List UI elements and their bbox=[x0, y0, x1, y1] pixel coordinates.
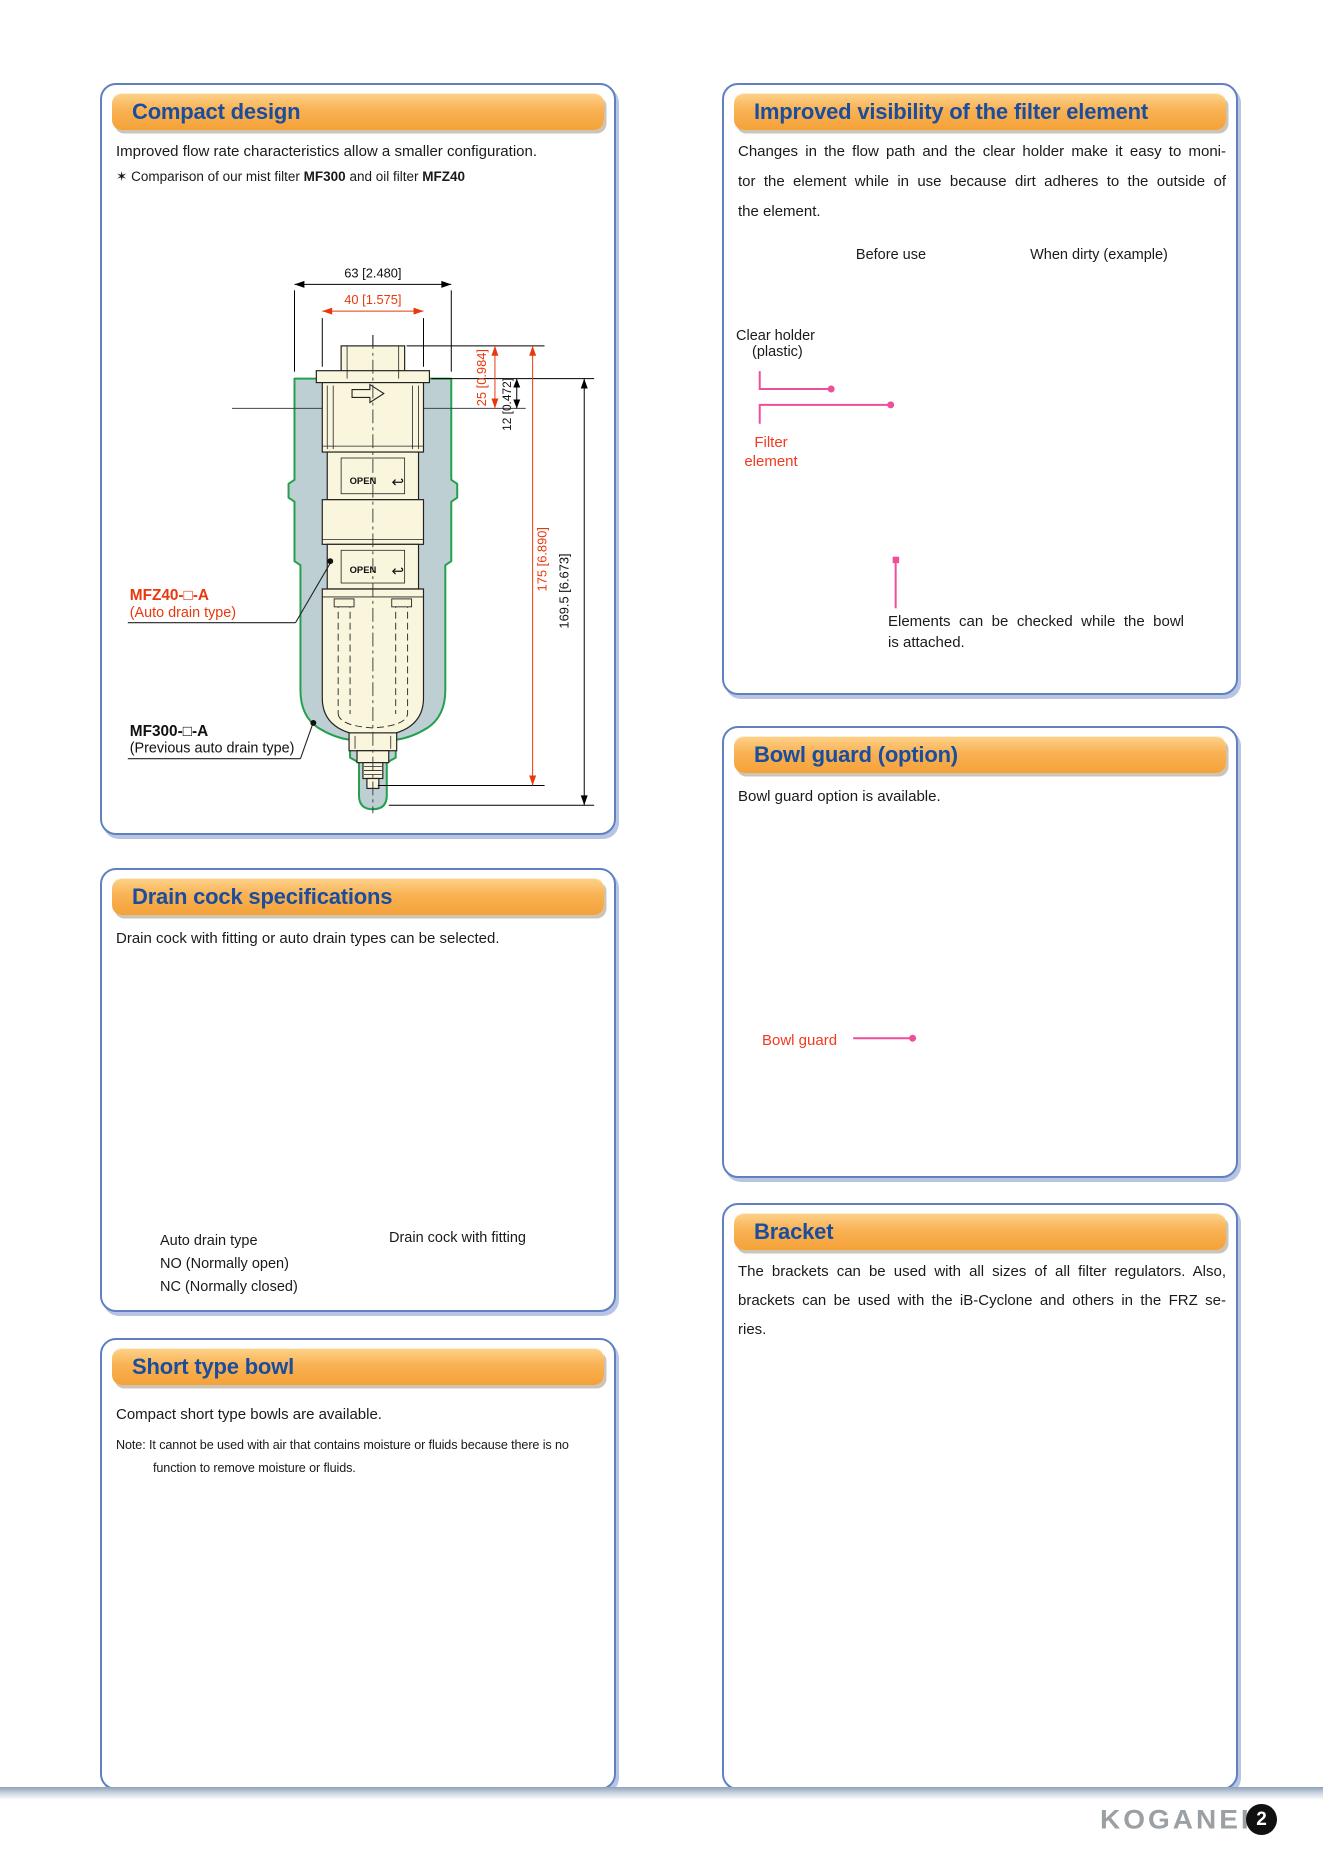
section-title: Drain cock specifications bbox=[132, 884, 392, 910]
label-old-model: MF300-□-A bbox=[130, 723, 208, 740]
panel-short-bowl: Short type bowl Compact short type bowls… bbox=[100, 1338, 616, 1790]
section-title: Bracket bbox=[754, 1219, 833, 1245]
section-title: Short type bowl bbox=[132, 1354, 294, 1380]
short-bowl-intro: Compact short type bowls are available. bbox=[116, 1404, 382, 1425]
dim-40-label: 40 [1.575] bbox=[344, 292, 401, 307]
filter-dimension-drawing: OPEN ↩ OPEN ↩ 63 [2.480] 40 [1.575] bbox=[102, 85, 614, 833]
panel-bracket: Bracket The brackets can be used with al… bbox=[722, 1203, 1238, 1790]
section-header-bracket: Bracket bbox=[734, 1213, 1226, 1250]
short-bowl-note-line1: Note: It cannot be used with air that co… bbox=[116, 1438, 569, 1452]
bracket-paragraph: The brackets can be used with all sizes … bbox=[738, 1257, 1226, 1344]
page-number: 2 bbox=[1256, 1809, 1267, 1831]
section-header-short-bowl: Short type bowl bbox=[112, 1348, 604, 1385]
catalog-page: { "page": {"width": 1323, "height": 1871… bbox=[0, 0, 1323, 1871]
paragraph-line: ries. bbox=[738, 1315, 1226, 1344]
dim-169-label: 169.5 [6.673] bbox=[556, 553, 571, 628]
dim-12 bbox=[513, 379, 520, 409]
paragraph-line: brackets can be used with the iB-Cyclone… bbox=[738, 1286, 1226, 1315]
page-number-badge: 2 bbox=[1246, 1804, 1277, 1835]
panel-bowl-guard: Bowl guard (option) Bowl guard option is… bbox=[722, 726, 1238, 1178]
visibility-leader-lines bbox=[724, 85, 1236, 693]
panel-compact-design: Compact design Improved flow rate charac… bbox=[100, 83, 616, 835]
open-hook-arrow-lower: ↩ bbox=[391, 564, 403, 580]
paragraph-line: The brackets can be used with all sizes … bbox=[738, 1257, 1226, 1286]
open-hook-arrow-upper: ↩ bbox=[391, 475, 403, 491]
panel-visibility: Improved visibility of the filter elemen… bbox=[722, 83, 1238, 695]
dim-12-label: 12 [0.472] bbox=[500, 378, 514, 431]
section-header-drain-cock: Drain cock specifications bbox=[112, 878, 604, 915]
caption-auto-drain: Auto drain type bbox=[160, 1230, 298, 1253]
bowl-guard-leader-line bbox=[724, 728, 1236, 1176]
label-new-model-sub: (Auto drain type) bbox=[130, 605, 236, 621]
panel-drain-cock: Drain cock specifications Drain cock wit… bbox=[100, 868, 616, 1312]
dim-25 bbox=[491, 346, 498, 409]
drain-cock-caption-right: Drain cock with fitting bbox=[389, 1230, 526, 1246]
dim-63-label: 63 [2.480] bbox=[344, 265, 401, 280]
dim-169 bbox=[581, 379, 588, 806]
label-new-model: MFZ40-□-A bbox=[130, 587, 209, 604]
caption-nc: NC (Normally closed) bbox=[160, 1276, 298, 1299]
drain-cock-caption-left: Auto drain type NO (Normally open) NC (N… bbox=[160, 1230, 298, 1299]
footer-divider bbox=[0, 1787, 1323, 1800]
dim-175-label: 175 [6.890] bbox=[535, 527, 550, 591]
label-old-model-sub: (Previous auto drain type) bbox=[130, 741, 295, 757]
short-bowl-note-line2: function to remove moisture or fluids. bbox=[153, 1461, 356, 1475]
dim-25-label: 25 [0.984] bbox=[474, 349, 489, 406]
caption-no: NO (Normally open) bbox=[160, 1253, 298, 1276]
drain-cock-intro: Drain cock with fitting or auto drain ty… bbox=[116, 928, 500, 949]
koganei-logo: KOGANEI bbox=[1100, 1805, 1252, 1835]
